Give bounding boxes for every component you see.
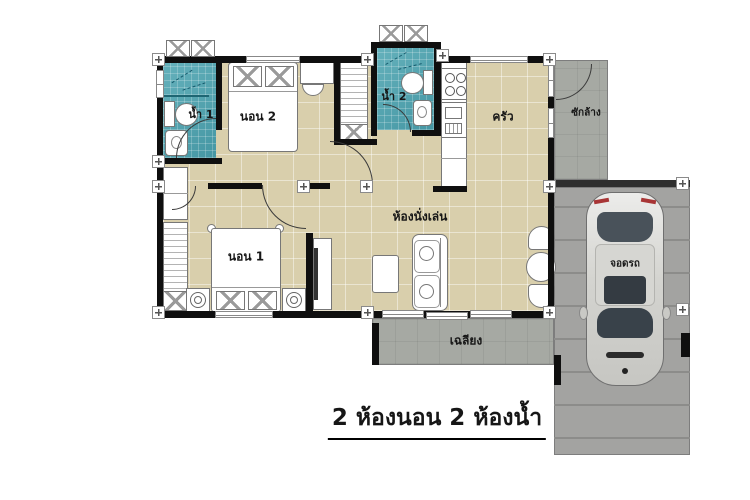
corner-marker [152,53,165,66]
stove-burner [445,73,455,83]
bed1-pillow [248,291,277,310]
corner-marker [152,155,165,168]
sliding-door-panel [426,312,468,320]
window [470,56,528,63]
corner-marker [676,177,689,190]
stove-burner [456,86,466,96]
car-mirror [579,306,588,320]
parking-top-edge [554,180,690,187]
corner-marker [543,306,556,319]
sink-basin [417,106,427,118]
bed1-blanket-line [212,287,280,288]
bath1-bottom-wall [157,158,222,164]
tv [314,248,318,300]
bed1-pillow [216,291,245,310]
corner-marker [152,306,165,319]
corner-marker [436,49,449,62]
window [156,70,164,98]
sofa-pillow [419,284,434,299]
wardrobe-end [163,291,188,311]
corner-marker [361,306,374,319]
sliding-door-panel [382,310,424,318]
room-label-living: ห้องนั่งเล่น [393,208,448,227]
laundry-door-opening [548,63,554,97]
closet-end [340,124,368,140]
lamp-inner [194,296,202,304]
pavement-line [554,404,690,406]
kitchen-sink-basin [445,107,462,119]
bed2-right-wall [334,56,340,145]
sofa-backrest [440,238,447,307]
sliding-door-panel [470,310,512,318]
window [215,311,273,318]
drain-rack [445,123,462,134]
bath1-right-wall [216,56,222,130]
kitchen-stub-wall [433,186,467,192]
sofa-pillow [419,246,434,261]
stove-burner [445,86,455,96]
bed2-pillow [265,66,294,87]
room-label-parking: จอดรถ [610,257,640,272]
corner-marker [152,180,165,193]
gate-post-right [681,333,690,357]
bath2-bottom-wall [412,130,441,136]
shower-partition [163,95,209,97]
porch-pillar [372,323,379,365]
corner-marker [676,303,689,316]
car-windshield [597,308,653,338]
corner-marker [543,53,556,66]
room-label-bath2: น้ำ 2 [381,87,406,105]
room-label-laundry: ซักล้าง [571,106,600,121]
room-label-bed1: นอน 1 [228,248,264,267]
corner-marker [361,53,374,66]
car-mirror [662,306,671,320]
toilet-tank [423,70,433,95]
corner-marker [297,180,310,193]
dresser [300,60,334,84]
pavement-line [554,437,690,439]
room-label-porch: เฉลียง [450,332,483,351]
plan-caption: 2 ห้องนอน 2 ห้องน้ำ [328,400,546,440]
bath2-top-wall [371,42,441,48]
corner-marker [543,180,556,193]
window [548,108,554,138]
bed1-right-wall [306,233,313,311]
room-label-kitchen: ครัว [492,108,513,127]
counter-divider [441,158,467,159]
stove-burner [456,73,466,83]
bed2-pillow [233,66,262,87]
bed1-top-wall [208,183,262,189]
car-grille [606,352,644,358]
gate-post-left [554,355,561,385]
water-heater-unit [166,40,190,57]
bed2-blanket-line [229,91,297,92]
water-heater-unit [191,40,215,57]
room-label-bed2: นอน 2 [240,108,276,127]
water-heater-unit [404,25,428,42]
car-sunroof [604,276,646,304]
corner-marker [360,180,373,193]
coffee-table [372,255,399,293]
toilet-tank [164,101,175,127]
car-emblem [622,368,628,374]
water-heater-unit [379,25,403,42]
car-rear-window [597,212,653,242]
floor-plan: น้ำ 1 นอน 2 น้ำ 2 ครัว ซักล้าง ห้องนั่งเ… [0,0,750,500]
lamp-inner [290,296,298,304]
room-label-bath1: น้ำ 1 [188,105,213,123]
window [246,56,300,63]
